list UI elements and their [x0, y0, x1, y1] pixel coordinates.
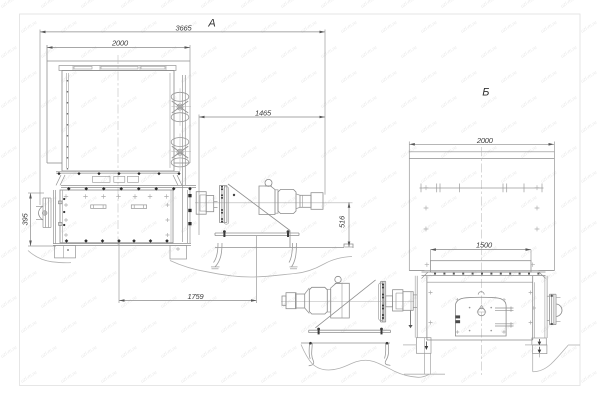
- svg-text:uzl-m.ru: uzl-m.ru: [160, 345, 179, 360]
- svg-text:uzl-m.ru: uzl-m.ru: [300, 170, 319, 185]
- svg-text:uzl-m.ru: uzl-m.ru: [500, 70, 519, 85]
- svg-text:uzl-m.ru: uzl-m.ru: [60, 270, 79, 285]
- svg-text:uzl-m.ru: uzl-m.ru: [0, 145, 18, 160]
- svg-text:uzl-m.ru: uzl-m.ru: [580, 170, 599, 185]
- svg-text:uzl-m.ru: uzl-m.ru: [540, 220, 559, 235]
- svg-text:uzl-m.ru: uzl-m.ru: [140, 270, 159, 285]
- svg-text:uzl-m.ru: uzl-m.ru: [500, 20, 519, 35]
- svg-text:uzl-m.ru: uzl-m.ru: [140, 370, 159, 385]
- svg-text:uzl-m.ru: uzl-m.ru: [240, 45, 259, 60]
- svg-text:uzl-m.ru: uzl-m.ru: [360, 145, 379, 160]
- svg-text:uzl-m.ru: uzl-m.ru: [80, 195, 99, 210]
- svg-text:uzl-m.ru: uzl-m.ru: [540, 120, 559, 135]
- svg-text:uzl-m.ru: uzl-m.ru: [100, 120, 119, 135]
- svg-text:uzl-m.ru: uzl-m.ru: [520, 345, 539, 360]
- svg-text:uzl-m.ru: uzl-m.ru: [0, 45, 18, 60]
- svg-text:uzl-m.ru: uzl-m.ru: [460, 170, 479, 185]
- svg-text:uzl-m.ru: uzl-m.ru: [140, 320, 159, 335]
- svg-text:uzl-m.ru: uzl-m.ru: [220, 370, 239, 385]
- svg-text:395: 395: [21, 213, 30, 226]
- svg-text:uzl-m.ru: uzl-m.ru: [260, 220, 279, 235]
- svg-text:uzl-m.ru: uzl-m.ru: [80, 295, 99, 310]
- svg-text:uzl-m.ru: uzl-m.ru: [60, 70, 79, 85]
- svg-text:uzl-m.ru: uzl-m.ru: [300, 70, 319, 85]
- svg-text:uzl-m.ru: uzl-m.ru: [40, 145, 59, 160]
- svg-text:uzl-m.ru: uzl-m.ru: [320, 0, 339, 10]
- svg-text:uzl-m.ru: uzl-m.ru: [240, 145, 259, 160]
- svg-text:uzl-m.ru: uzl-m.ru: [300, 370, 319, 385]
- svg-text:uzl-m.ru: uzl-m.ru: [320, 95, 339, 110]
- svg-text:uzl-m.ru: uzl-m.ru: [520, 245, 539, 260]
- svg-text:uzl-m.ru: uzl-m.ru: [100, 270, 119, 285]
- svg-text:uzl-m.ru: uzl-m.ru: [260, 70, 279, 85]
- svg-text:uzl-m.ru: uzl-m.ru: [360, 45, 379, 60]
- svg-text:uzl-m.ru: uzl-m.ru: [120, 345, 139, 360]
- svg-text:uzl-m.ru: uzl-m.ru: [440, 245, 459, 260]
- svg-text:uzl-m.ru: uzl-m.ru: [420, 220, 439, 235]
- svg-text:uzl-m.ru: uzl-m.ru: [460, 370, 479, 385]
- svg-text:uzl-m.ru: uzl-m.ru: [520, 95, 539, 110]
- svg-text:uzl-m.ru: uzl-m.ru: [380, 170, 399, 185]
- svg-text:uzl-m.ru: uzl-m.ru: [420, 70, 439, 85]
- svg-text:uzl-m.ru: uzl-m.ru: [160, 295, 179, 310]
- svg-text:uzl-m.ru: uzl-m.ru: [140, 20, 159, 35]
- svg-text:uzl-m.ru: uzl-m.ru: [60, 370, 79, 385]
- svg-text:uzl-m.ru: uzl-m.ru: [300, 20, 319, 35]
- svg-text:uzl-m.ru: uzl-m.ru: [580, 20, 599, 35]
- svg-text:uzl-m.ru: uzl-m.ru: [160, 195, 179, 210]
- svg-text:uzl-m.ru: uzl-m.ru: [360, 345, 379, 360]
- svg-text:uzl-m.ru: uzl-m.ru: [100, 220, 119, 235]
- svg-text:uzl-m.ru: uzl-m.ru: [20, 370, 39, 385]
- svg-text:uzl-m.ru: uzl-m.ru: [460, 220, 479, 235]
- svg-text:uzl-m.ru: uzl-m.ru: [100, 70, 119, 85]
- svg-text:uzl-m.ru: uzl-m.ru: [580, 270, 599, 285]
- svg-text:uzl-m.ru: uzl-m.ru: [260, 170, 279, 185]
- svg-text:uzl-m.ru: uzl-m.ru: [240, 0, 259, 10]
- svg-text:uzl-m.ru: uzl-m.ru: [560, 95, 579, 110]
- svg-text:uzl-m.ru: uzl-m.ru: [320, 145, 339, 160]
- svg-text:uzl-m.ru: uzl-m.ru: [20, 120, 39, 135]
- svg-text:uzl-m.ru: uzl-m.ru: [400, 0, 419, 10]
- svg-text:uzl-m.ru: uzl-m.ru: [220, 120, 239, 135]
- svg-text:uzl-m.ru: uzl-m.ru: [120, 245, 139, 260]
- svg-text:uzl-m.ru: uzl-m.ru: [360, 95, 379, 110]
- svg-text:uzl-m.ru: uzl-m.ru: [560, 45, 579, 60]
- svg-text:uzl-m.ru: uzl-m.ru: [160, 95, 179, 110]
- svg-text:uzl-m.ru: uzl-m.ru: [320, 295, 339, 310]
- svg-text:uzl-m.ru: uzl-m.ru: [80, 0, 99, 10]
- svg-text:uzl-m.ru: uzl-m.ru: [520, 195, 539, 210]
- svg-text:uzl-m.ru: uzl-m.ru: [80, 145, 99, 160]
- svg-text:uzl-m.ru: uzl-m.ru: [60, 320, 79, 335]
- svg-text:uzl-m.ru: uzl-m.ru: [240, 245, 259, 260]
- svg-text:uzl-m.ru: uzl-m.ru: [100, 370, 119, 385]
- svg-text:uzl-m.ru: uzl-m.ru: [180, 320, 199, 335]
- svg-text:uzl-m.ru: uzl-m.ru: [0, 0, 18, 10]
- svg-text:uzl-m.ru: uzl-m.ru: [40, 95, 59, 110]
- svg-text:uzl-m.ru: uzl-m.ru: [400, 95, 419, 110]
- svg-text:uzl-m.ru: uzl-m.ru: [400, 345, 419, 360]
- svg-text:uzl-m.ru: uzl-m.ru: [580, 220, 599, 235]
- svg-text:uzl-m.ru: uzl-m.ru: [20, 70, 39, 85]
- svg-text:uzl-m.ru: uzl-m.ru: [480, 345, 499, 360]
- svg-text:uzl-m.ru: uzl-m.ru: [40, 245, 59, 260]
- svg-text:uzl-m.ru: uzl-m.ru: [500, 170, 519, 185]
- svg-text:uzl-m.ru: uzl-m.ru: [320, 245, 339, 260]
- svg-text:uzl-m.ru: uzl-m.ru: [500, 320, 519, 335]
- svg-text:uzl-m.ru: uzl-m.ru: [60, 20, 79, 35]
- svg-text:uzl-m.ru: uzl-m.ru: [580, 320, 599, 335]
- svg-text:uzl-m.ru: uzl-m.ru: [100, 320, 119, 335]
- svg-text:uzl-m.ru: uzl-m.ru: [160, 45, 179, 60]
- svg-text:uzl-m.ru: uzl-m.ru: [0, 295, 18, 310]
- svg-text:uzl-m.ru: uzl-m.ru: [460, 120, 479, 135]
- svg-text:uzl-m.ru: uzl-m.ru: [200, 145, 219, 160]
- svg-text:uzl-m.ru: uzl-m.ru: [580, 120, 599, 135]
- svg-text:uzl-m.ru: uzl-m.ru: [280, 95, 299, 110]
- svg-text:uzl-m.ru: uzl-m.ru: [500, 370, 519, 385]
- svg-text:uzl-m.ru: uzl-m.ru: [240, 295, 259, 310]
- svg-text:uzl-m.ru: uzl-m.ru: [160, 0, 179, 10]
- svg-text:uzl-m.ru: uzl-m.ru: [200, 345, 219, 360]
- svg-text:uzl-m.ru: uzl-m.ru: [560, 195, 579, 210]
- svg-text:uzl-m.ru: uzl-m.ru: [540, 370, 559, 385]
- svg-text:1465: 1465: [255, 108, 272, 117]
- svg-text:uzl-m.ru: uzl-m.ru: [240, 345, 259, 360]
- svg-text:uzl-m.ru: uzl-m.ru: [540, 20, 559, 35]
- svg-text:uzl-m.ru: uzl-m.ru: [120, 0, 139, 10]
- svg-text:uzl-m.ru: uzl-m.ru: [280, 245, 299, 260]
- svg-text:1500: 1500: [476, 240, 493, 249]
- svg-text:uzl-m.ru: uzl-m.ru: [100, 20, 119, 35]
- svg-text:uzl-m.ru: uzl-m.ru: [20, 170, 39, 185]
- svg-text:uzl-m.ru: uzl-m.ru: [360, 195, 379, 210]
- svg-text:uzl-m.ru: uzl-m.ru: [120, 295, 139, 310]
- svg-text:uzl-m.ru: uzl-m.ru: [360, 245, 379, 260]
- svg-text:uzl-m.ru: uzl-m.ru: [180, 270, 199, 285]
- svg-text:uzl-m.ru: uzl-m.ru: [400, 45, 419, 60]
- svg-text:uzl-m.ru: uzl-m.ru: [280, 45, 299, 60]
- svg-text:uzl-m.ru: uzl-m.ru: [160, 245, 179, 260]
- svg-text:uzl-m.ru: uzl-m.ru: [360, 0, 379, 10]
- svg-text:uzl-m.ru: uzl-m.ru: [260, 270, 279, 285]
- svg-text:А: А: [207, 18, 215, 30]
- svg-text:uzl-m.ru: uzl-m.ru: [60, 120, 79, 135]
- svg-text:uzl-m.ru: uzl-m.ru: [440, 145, 459, 160]
- svg-text:uzl-m.ru: uzl-m.ru: [340, 120, 359, 135]
- svg-text:uzl-m.ru: uzl-m.ru: [20, 270, 39, 285]
- svg-text:uzl-m.ru: uzl-m.ru: [380, 20, 399, 35]
- svg-text:uzl-m.ru: uzl-m.ru: [300, 120, 319, 135]
- svg-text:uzl-m.ru: uzl-m.ru: [440, 45, 459, 60]
- svg-text:uzl-m.ru: uzl-m.ru: [420, 170, 439, 185]
- svg-text:uzl-m.ru: uzl-m.ru: [20, 320, 39, 335]
- svg-text:uzl-m.ru: uzl-m.ru: [120, 145, 139, 160]
- svg-text:uzl-m.ru: uzl-m.ru: [220, 320, 239, 335]
- svg-text:uzl-m.ru: uzl-m.ru: [260, 370, 279, 385]
- svg-text:uzl-m.ru: uzl-m.ru: [280, 345, 299, 360]
- svg-text:uzl-m.ru: uzl-m.ru: [220, 270, 239, 285]
- svg-text:uzl-m.ru: uzl-m.ru: [200, 95, 219, 110]
- svg-text:uzl-m.ru: uzl-m.ru: [380, 220, 399, 235]
- svg-text:uzl-m.ru: uzl-m.ru: [140, 170, 159, 185]
- svg-text:uzl-m.ru: uzl-m.ru: [560, 145, 579, 160]
- svg-text:uzl-m.ru: uzl-m.ru: [80, 45, 99, 60]
- svg-text:uzl-m.ru: uzl-m.ru: [480, 0, 499, 10]
- svg-text:uzl-m.ru: uzl-m.ru: [560, 0, 579, 10]
- svg-text:1759: 1759: [188, 292, 205, 301]
- svg-text:uzl-m.ru: uzl-m.ru: [560, 295, 579, 310]
- svg-text:uzl-m.ru: uzl-m.ru: [520, 45, 539, 60]
- svg-text:uzl-m.ru: uzl-m.ru: [280, 0, 299, 10]
- svg-text:uzl-m.ru: uzl-m.ru: [380, 120, 399, 135]
- svg-text:uzl-m.ru: uzl-m.ru: [340, 20, 359, 35]
- svg-text:uzl-m.ru: uzl-m.ru: [520, 0, 539, 10]
- svg-text:uzl-m.ru: uzl-m.ru: [260, 120, 279, 135]
- svg-text:uzl-m.ru: uzl-m.ru: [480, 145, 499, 160]
- svg-text:3665: 3665: [176, 23, 193, 32]
- svg-text:uzl-m.ru: uzl-m.ru: [280, 145, 299, 160]
- svg-text:uzl-m.ru: uzl-m.ru: [0, 345, 18, 360]
- svg-text:2000: 2000: [111, 38, 129, 47]
- svg-text:uzl-m.ru: uzl-m.ru: [240, 195, 259, 210]
- svg-text:uzl-m.ru: uzl-m.ru: [440, 0, 459, 10]
- svg-text:uzl-m.ru: uzl-m.ru: [120, 195, 139, 210]
- svg-text:uzl-m.ru: uzl-m.ru: [20, 20, 39, 35]
- svg-text:uzl-m.ru: uzl-m.ru: [420, 320, 439, 335]
- svg-text:uzl-m.ru: uzl-m.ru: [40, 345, 59, 360]
- svg-text:uzl-m.ru: uzl-m.ru: [460, 20, 479, 35]
- svg-text:uzl-m.ru: uzl-m.ru: [220, 70, 239, 85]
- svg-text:uzl-m.ru: uzl-m.ru: [380, 70, 399, 85]
- svg-text:uzl-m.ru: uzl-m.ru: [340, 70, 359, 85]
- svg-text:uzl-m.ru: uzl-m.ru: [440, 345, 459, 360]
- svg-text:uzl-m.ru: uzl-m.ru: [520, 145, 539, 160]
- svg-text:uzl-m.ru: uzl-m.ru: [260, 20, 279, 35]
- svg-text:uzl-m.ru: uzl-m.ru: [540, 170, 559, 185]
- svg-text:uzl-m.ru: uzl-m.ru: [480, 45, 499, 60]
- svg-text:uzl-m.ru: uzl-m.ru: [260, 320, 279, 335]
- svg-text:uzl-m.ru: uzl-m.ru: [340, 270, 359, 285]
- svg-text:uzl-m.ru: uzl-m.ru: [360, 295, 379, 310]
- svg-text:uzl-m.ru: uzl-m.ru: [500, 120, 519, 135]
- svg-text:uzl-m.ru: uzl-m.ru: [40, 45, 59, 60]
- svg-text:uzl-m.ru: uzl-m.ru: [140, 70, 159, 85]
- svg-text:uzl-m.ru: uzl-m.ru: [140, 120, 159, 135]
- svg-text:uzl-m.ru: uzl-m.ru: [220, 20, 239, 35]
- svg-text:Б: Б: [482, 87, 489, 99]
- svg-text:uzl-m.ru: uzl-m.ru: [0, 195, 18, 210]
- svg-text:uzl-m.ru: uzl-m.ru: [420, 20, 439, 35]
- svg-text:uzl-m.ru: uzl-m.ru: [300, 220, 319, 235]
- svg-text:uzl-m.ru: uzl-m.ru: [200, 45, 219, 60]
- svg-text:uzl-m.ru: uzl-m.ru: [0, 245, 18, 260]
- svg-text:uzl-m.ru: uzl-m.ru: [580, 70, 599, 85]
- svg-text:uzl-m.ru: uzl-m.ru: [40, 0, 59, 10]
- svg-text:uzl-m.ru: uzl-m.ru: [580, 370, 599, 385]
- svg-text:uzl-m.ru: uzl-m.ru: [520, 295, 539, 310]
- svg-text:uzl-m.ru: uzl-m.ru: [440, 195, 459, 210]
- svg-text:uzl-m.ru: uzl-m.ru: [340, 170, 359, 185]
- svg-text:uzl-m.ru: uzl-m.ru: [480, 195, 499, 210]
- svg-text:uzl-m.ru: uzl-m.ru: [340, 370, 359, 385]
- svg-text:uzl-m.ru: uzl-m.ru: [460, 70, 479, 85]
- svg-text:uzl-m.ru: uzl-m.ru: [420, 120, 439, 135]
- svg-text:uzl-m.ru: uzl-m.ru: [320, 345, 339, 360]
- svg-text:uzl-m.ru: uzl-m.ru: [80, 345, 99, 360]
- svg-text:uzl-m.ru: uzl-m.ru: [200, 245, 219, 260]
- svg-text:uzl-m.ru: uzl-m.ru: [560, 245, 579, 260]
- svg-text:uzl-m.ru: uzl-m.ru: [180, 370, 199, 385]
- svg-text:uzl-m.ru: uzl-m.ru: [200, 0, 219, 10]
- svg-text:uzl-m.ru: uzl-m.ru: [0, 95, 18, 110]
- svg-text:2000: 2000: [476, 136, 494, 145]
- svg-text:uzl-m.ru: uzl-m.ru: [40, 295, 59, 310]
- svg-text:uzl-m.ru: uzl-m.ru: [540, 70, 559, 85]
- svg-text:uzl-m.ru: uzl-m.ru: [60, 170, 79, 185]
- svg-text:uzl-m.ru: uzl-m.ru: [80, 95, 99, 110]
- svg-text:uzl-m.ru: uzl-m.ru: [140, 220, 159, 235]
- svg-text:uzl-m.ru: uzl-m.ru: [80, 245, 99, 260]
- svg-text:uzl-m.ru: uzl-m.ru: [500, 220, 519, 235]
- svg-text:uzl-m.ru: uzl-m.ru: [460, 320, 479, 335]
- svg-text:uzl-m.ru: uzl-m.ru: [440, 95, 459, 110]
- svg-text:uzl-m.ru: uzl-m.ru: [320, 45, 339, 60]
- svg-text:uzl-m.ru: uzl-m.ru: [120, 95, 139, 110]
- svg-text:uzl-m.ru: uzl-m.ru: [220, 170, 239, 185]
- svg-text:uzl-m.ru: uzl-m.ru: [160, 145, 179, 160]
- svg-text:516: 516: [337, 215, 346, 228]
